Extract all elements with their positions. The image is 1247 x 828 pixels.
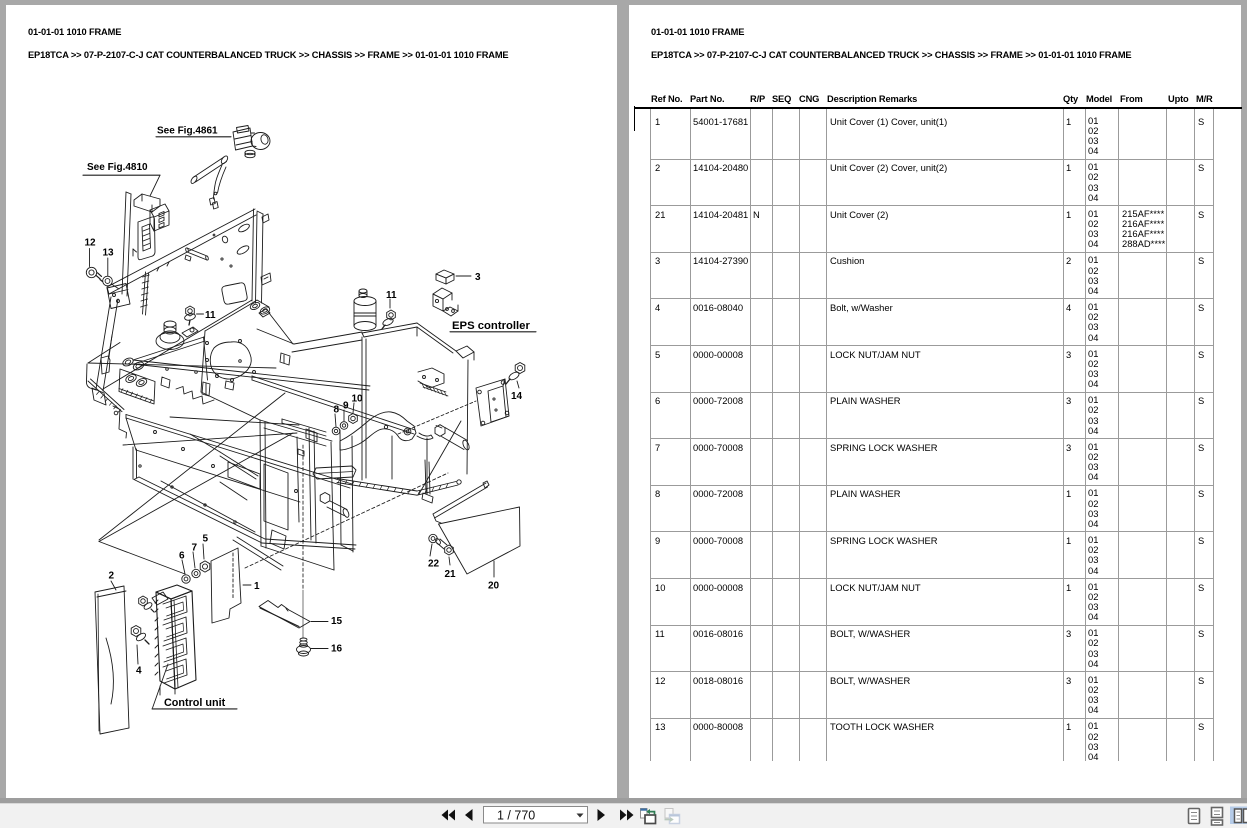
- svg-text:1 / 770: 1 / 770: [497, 809, 535, 823]
